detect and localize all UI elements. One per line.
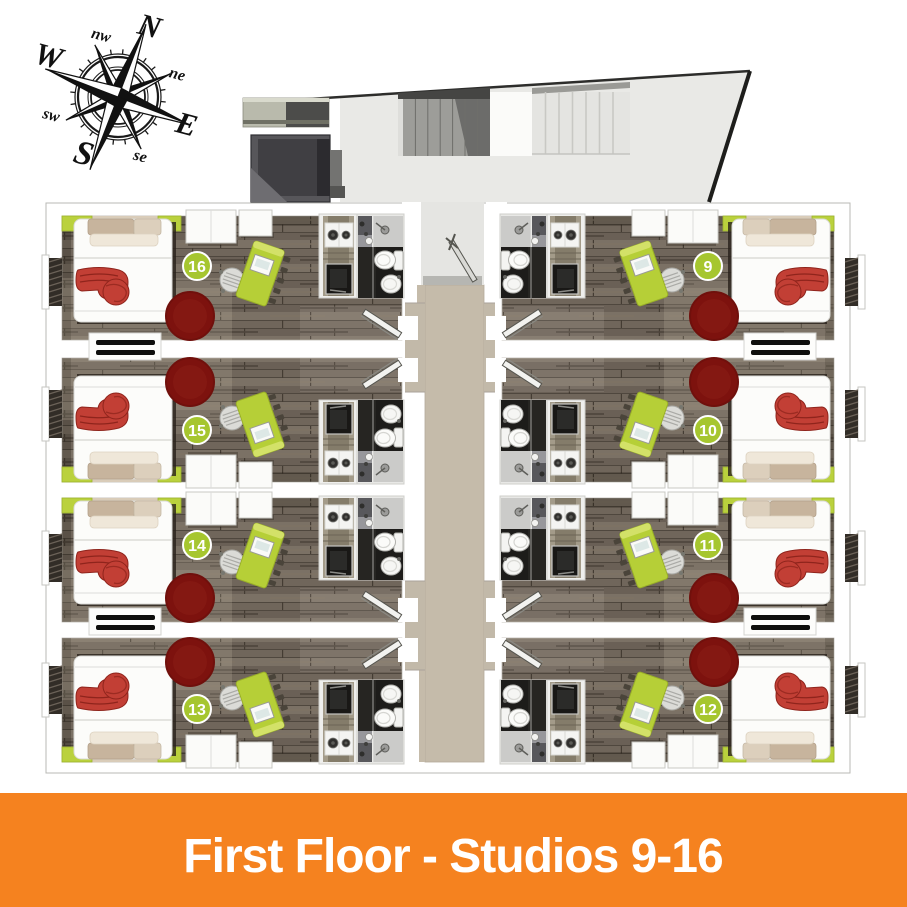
svg-text:E: E	[171, 104, 201, 143]
svg-text:11: 11	[700, 538, 717, 555]
svg-text:W: W	[31, 35, 69, 77]
svg-text:16: 16	[188, 259, 206, 276]
svg-text:First Floor - Studios 9-16: First Floor - Studios 9-16	[183, 830, 722, 883]
svg-text:14: 14	[188, 538, 206, 555]
svg-text:12: 12	[699, 702, 717, 719]
svg-text:13: 13	[188, 702, 206, 719]
svg-text:15: 15	[188, 423, 206, 440]
svg-text:S: S	[70, 134, 98, 175]
svg-text:nw: nw	[90, 25, 114, 47]
svg-text:sw: sw	[40, 105, 62, 126]
svg-text:9: 9	[704, 259, 713, 276]
svg-text:N: N	[133, 6, 166, 46]
svg-text:10: 10	[699, 423, 717, 440]
svg-text:se: se	[131, 146, 149, 166]
svg-text:ne: ne	[167, 64, 187, 85]
